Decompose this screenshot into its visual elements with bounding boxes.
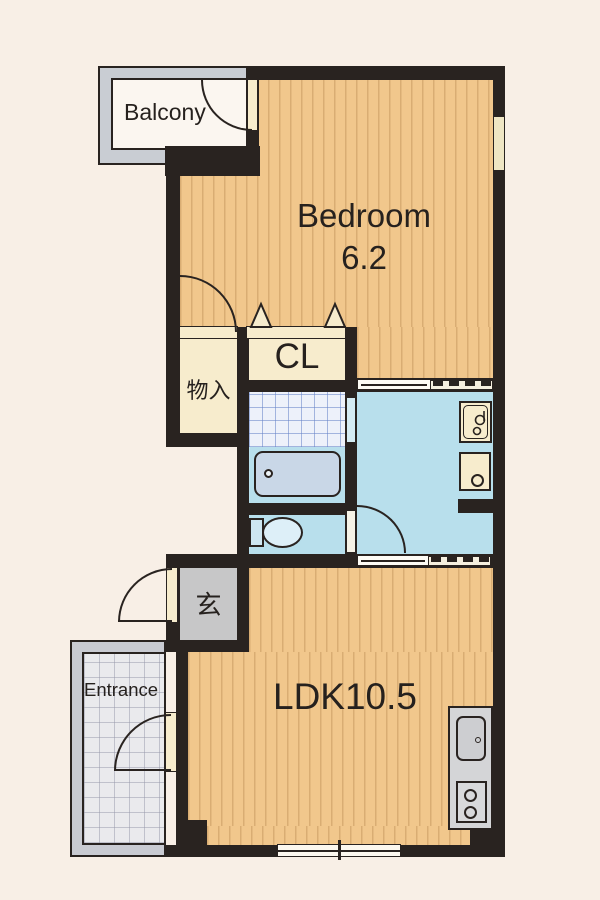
bedroom-label: Bedroom — [253, 197, 475, 235]
genkan-label: 玄 — [180, 585, 237, 622]
bedroom-sliding-door-track — [361, 384, 427, 386]
stove-burner — [464, 806, 477, 819]
wall — [458, 499, 493, 513]
washbasin-bowl — [463, 405, 488, 439]
bathroom-door — [346, 397, 356, 443]
wall — [246, 66, 505, 80]
wall — [249, 503, 345, 515]
bedroom-label-group: Bedroom 6.2 — [253, 197, 475, 277]
wall — [176, 820, 207, 845]
entrance-door-arc — [118, 568, 172, 622]
ldk-window-tick — [338, 840, 341, 860]
wall — [166, 640, 249, 652]
wall — [493, 66, 505, 857]
ldk-sliding-door-opening — [431, 557, 489, 562]
kitchen-sink-icon — [456, 716, 486, 761]
storage-label: 物入 — [180, 373, 237, 405]
ldk-floor — [249, 568, 493, 652]
bathroom-tile-floor — [249, 392, 345, 447]
balcony-label: Balcony — [124, 99, 206, 126]
bedroom-sliding-door-opening — [433, 381, 491, 386]
bedroom-size-label: 6.2 — [253, 239, 475, 277]
kitchen-faucet — [475, 737, 481, 743]
wall — [166, 146, 180, 447]
wall — [237, 392, 249, 568]
bedroom-floor — [357, 327, 493, 380]
closet-label: CL — [249, 337, 345, 377]
toilet-door — [346, 510, 356, 553]
wall — [237, 380, 357, 392]
bedroom-floor — [257, 80, 493, 176]
entrance-label: Entrance — [84, 679, 158, 701]
wall — [470, 826, 505, 857]
wall — [176, 652, 188, 845]
bathtub-drain — [264, 469, 273, 478]
toilet-icon — [262, 517, 303, 548]
stove-burner — [464, 789, 477, 802]
ldk-sliding-door-track — [361, 560, 425, 562]
ldk-label: LDK10.5 — [240, 676, 450, 718]
washing-machine-drain — [471, 474, 484, 487]
bedroom-window — [493, 116, 505, 171]
floor-plan: Balcony — [0, 0, 600, 900]
